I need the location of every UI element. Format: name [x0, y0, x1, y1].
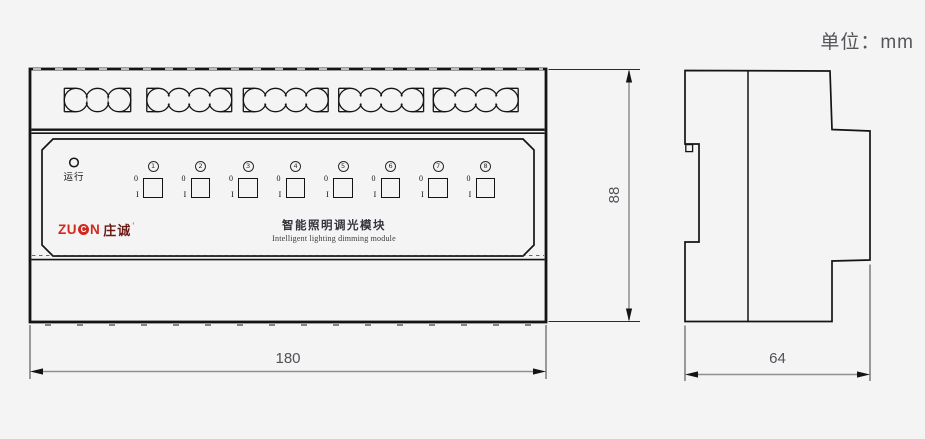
terminal-block-group — [243, 88, 328, 111]
terminal-hole-mask — [340, 90, 361, 111]
terminal-hole-mask — [496, 90, 517, 111]
terminal-hole-mask — [306, 90, 327, 111]
product-title-en: Intelligent lighting dimming module — [238, 234, 430, 243]
technical-drawing-canvas: 单位：mm 180 88 64 运行 10I20I30I40I50I60I70I… — [0, 0, 925, 439]
run-led-label: 运行 — [57, 169, 91, 183]
terminal-blocks — [64, 88, 518, 111]
terminal-hole-mask — [265, 90, 286, 111]
terminal-hole-mask — [361, 90, 382, 111]
width-arrow-left — [30, 368, 43, 374]
terminal-hole-mask — [381, 90, 402, 111]
height-arrow-top — [626, 70, 632, 83]
depth-arrow-right — [857, 371, 870, 377]
width-arrow-right — [533, 368, 546, 374]
unit-note: 单位：mm — [788, 27, 914, 54]
side-view — [685, 71, 870, 322]
terminal-block-group — [64, 88, 130, 111]
terminal-hole-mask — [435, 90, 456, 111]
terminal-hole-mask — [87, 90, 108, 111]
height-arrow-bottom — [626, 309, 632, 322]
terminal-hole-mask — [286, 90, 307, 111]
terminal-hole-mask — [66, 90, 87, 111]
terminal-hole-mask — [169, 90, 190, 111]
logo-text-cn: 庄诚 — [103, 220, 131, 239]
logo-text-zu: ZU — [58, 222, 77, 237]
side-view-outline — [685, 71, 870, 322]
depth-arrow-left — [685, 371, 698, 377]
terminal-hole-mask — [402, 90, 423, 111]
product-title-cn: 智能照明调光模块 — [238, 217, 430, 233]
terminal-block-group — [433, 88, 518, 111]
terminal-block-group — [147, 88, 232, 111]
terminal-hole-mask — [455, 90, 476, 111]
front-view — [30, 69, 546, 325]
run-led — [70, 158, 79, 167]
product-title-block: 智能照明调光模块 Intelligent lighting dimming mo… — [238, 217, 430, 244]
logo-trademark: ’ — [132, 221, 134, 231]
line-art — [0, 0, 925, 439]
dimension-lines — [30, 70, 870, 382]
din-rail-clip — [686, 145, 693, 152]
depth-dimension-value: 64 — [747, 350, 808, 367]
height-extension-lines — [549, 70, 641, 322]
terminal-hole-mask — [210, 90, 231, 111]
terminal-hole-mask — [245, 90, 266, 111]
terminal-hole-mask — [189, 90, 210, 111]
terminal-block-group — [339, 88, 424, 111]
terminal-hole-mask — [109, 90, 130, 111]
height-dimension-value: 88 — [606, 175, 624, 215]
terminal-hole-mask — [148, 90, 169, 111]
logo-text-n: N — [90, 222, 100, 237]
terminal-hole-mask — [476, 90, 497, 111]
brand-logo: ZUCN庄诚’ — [58, 220, 134, 239]
width-dimension-value: 180 — [258, 350, 318, 367]
logo-c-badge-icon: C — [78, 224, 89, 235]
